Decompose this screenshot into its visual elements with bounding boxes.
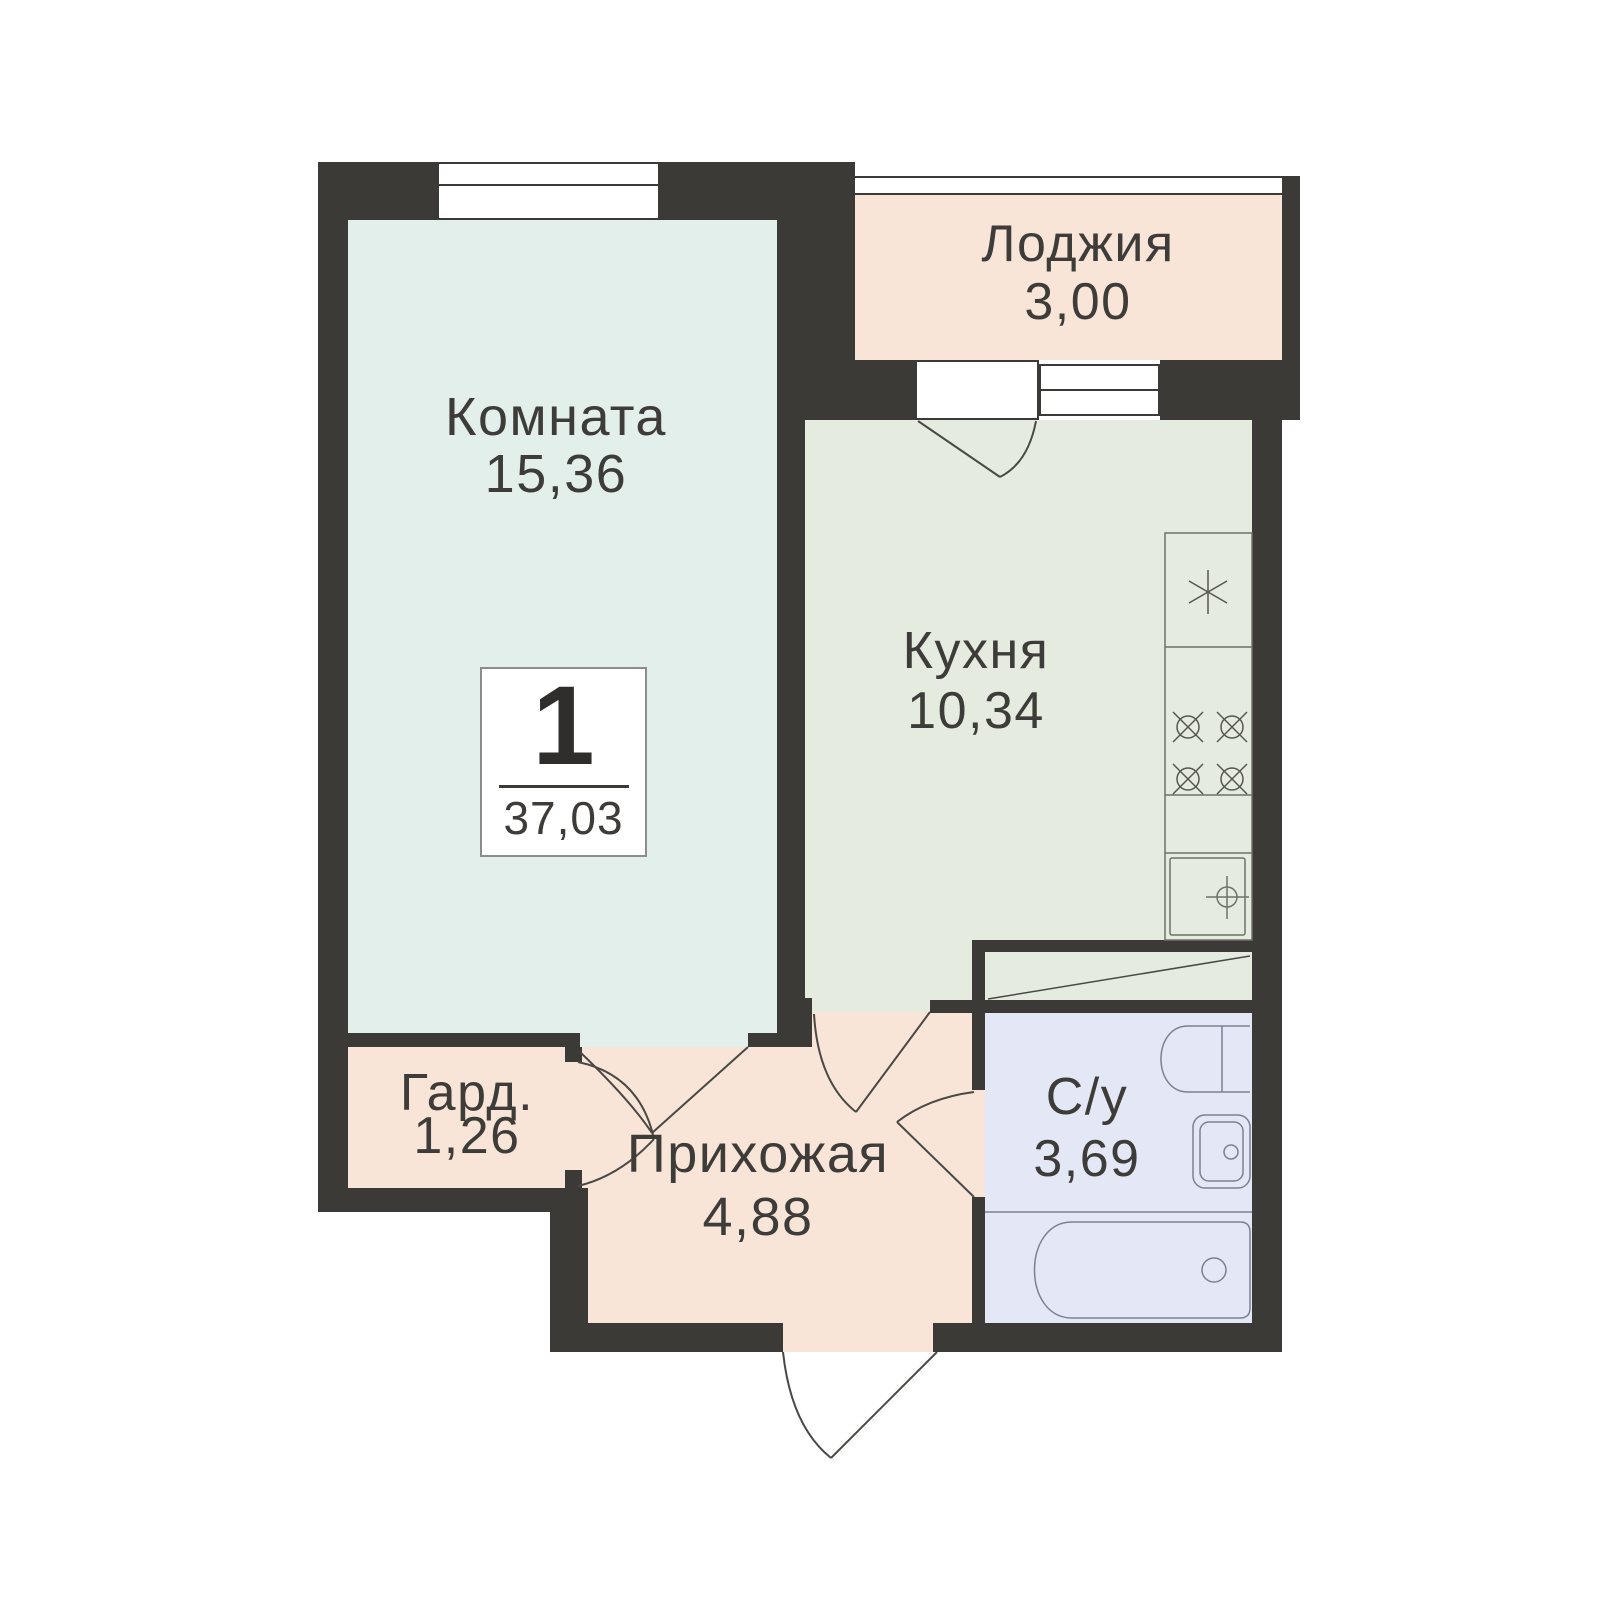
hallway-area-fill-upper xyxy=(805,1012,972,1047)
wall-bathroom-left-bottom xyxy=(972,1197,985,1323)
wall-kitchen-bottom xyxy=(972,940,1252,952)
wall-wardrobe-right-top xyxy=(565,1047,582,1062)
room-name: Прихожая xyxy=(627,1123,889,1186)
entrance-opening-fill xyxy=(783,1323,933,1352)
room-name: Кухня xyxy=(903,621,1050,681)
wall-room-kitchen xyxy=(777,420,805,1047)
room-name: С/у xyxy=(1033,1066,1140,1128)
apartment-info-box: 1 37,03 xyxy=(480,667,647,857)
loggia-glazing xyxy=(855,176,1282,195)
room-name: Лоджия xyxy=(981,215,1174,273)
wall-left-exterior xyxy=(318,162,348,1212)
wall-loggia-kitchen-left xyxy=(855,360,915,420)
room-door-opening-fill xyxy=(580,1033,748,1047)
wall-room-bottom-left xyxy=(348,1033,580,1047)
wall-wardrobe-right-bottom xyxy=(565,1170,582,1188)
floor-plan: Комната 15,36 Лоджия 3,00 Кухня 10,34 Га… xyxy=(0,0,1620,1620)
room-area-fill xyxy=(348,220,777,1033)
room-area: 3,69 xyxy=(1033,1128,1140,1190)
room-label-hallway: Прихожая 4,88 xyxy=(627,1123,889,1249)
wall-bottom-right xyxy=(933,1323,1282,1352)
balcony-window xyxy=(1039,364,1160,416)
entrance-door-swing xyxy=(783,1352,937,1458)
room-label-kitchen: Кухня 10,34 xyxy=(903,621,1050,741)
room-area: 3,00 xyxy=(981,273,1174,331)
duct-strip-fill xyxy=(985,952,1252,1000)
wardrobe-door-opening-fill xyxy=(567,1062,582,1170)
wall-loggia-right xyxy=(1282,176,1300,420)
wall-bottom-left xyxy=(550,1323,783,1352)
total-area: 37,03 xyxy=(482,790,645,846)
balcony-door xyxy=(915,360,1039,420)
rooms-count: 1 xyxy=(482,669,645,783)
room-name: Комната xyxy=(445,389,667,446)
wall-wardrobe-bottom xyxy=(318,1188,588,1212)
room-area: 1,26 xyxy=(400,1115,534,1158)
room-label-loggia: Лоджия 3,00 xyxy=(981,215,1174,331)
room-label-living: Комната 15,36 xyxy=(445,389,667,503)
room-area: 10,34 xyxy=(903,681,1050,741)
room-window xyxy=(437,162,660,220)
wall-column-loggia-left xyxy=(777,162,855,420)
wall-bathroom-top xyxy=(930,1000,1252,1013)
wall-right-exterior xyxy=(1252,420,1282,1352)
room-area: 4,88 xyxy=(627,1186,889,1249)
room-label-bathroom: С/у 3,69 xyxy=(1033,1066,1140,1190)
wall-loggia-kitchen-right xyxy=(1160,360,1282,420)
bathroom-door-opening-fill xyxy=(972,1090,985,1197)
room-label-wardrobe: Гард. 1,26 xyxy=(400,1072,534,1158)
wall-bathroom-left-top xyxy=(972,1013,985,1090)
wall-kitchen-door-jamb xyxy=(795,998,812,1047)
room-area: 15,36 xyxy=(445,446,667,503)
